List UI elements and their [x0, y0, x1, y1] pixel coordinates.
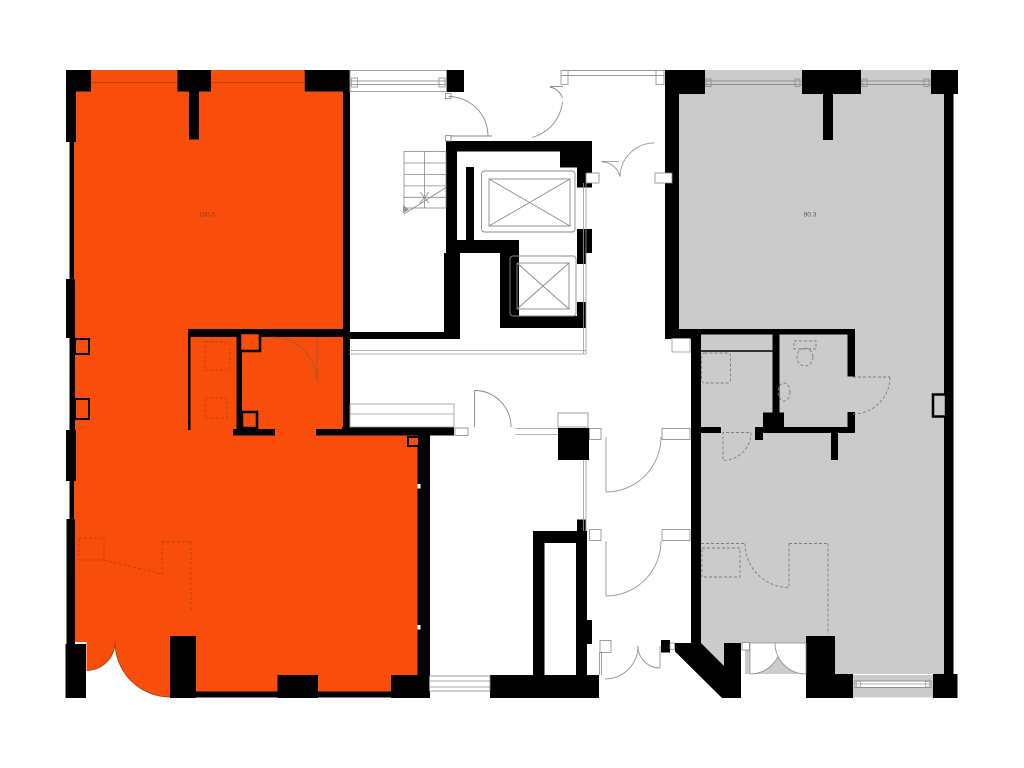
svg-text:90.3: 90.3 — [804, 212, 817, 219]
svg-text:100.5: 100.5 — [199, 212, 216, 219]
